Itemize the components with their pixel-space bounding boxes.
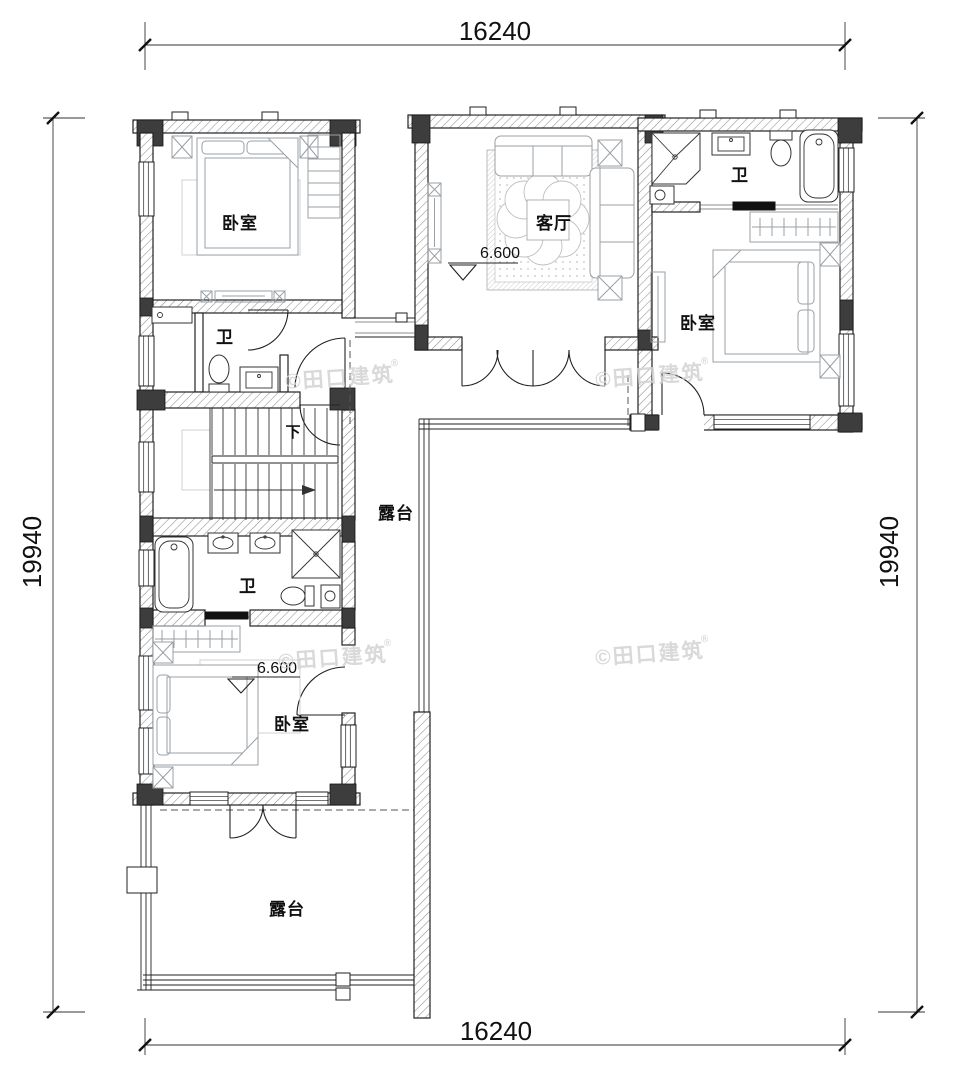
watermark-reg-icon: ® [701, 634, 710, 646]
counter [152, 307, 192, 323]
terrace-side-wall [414, 712, 430, 1018]
corner-basin [321, 585, 340, 608]
corner-basin [650, 186, 674, 204]
bed [153, 665, 258, 765]
room-label-terrace-middle: 露台 [378, 503, 414, 523]
toilet [770, 131, 792, 166]
dimension-right-value: 19940 [874, 516, 904, 588]
stair-down-label: 下 [285, 424, 300, 441]
drain-marker [336, 988, 350, 1000]
sofa-chaise [590, 168, 634, 278]
room-label-living-room: 客厅 [535, 213, 572, 233]
side-table [598, 276, 622, 300]
room-label-bath-middle: 卫 [239, 577, 257, 596]
shower [652, 133, 700, 184]
nightstand [172, 136, 192, 158]
side-table [598, 140, 622, 166]
floor-plan: 16240 16240 19940 19940 [0, 0, 960, 1087]
room-label-bath-top-left: 卫 [216, 328, 234, 347]
bed [713, 250, 820, 362]
bathtub [155, 537, 193, 612]
bed [197, 138, 298, 255]
room-label-terrace-bottom: 露台 [269, 899, 305, 919]
shower [292, 530, 340, 578]
dimension-left-value: 19940 [17, 516, 47, 588]
sink-vanity [208, 533, 238, 553]
watermark-reg-icon: ® [391, 358, 400, 370]
drain-marker [336, 973, 350, 986]
room-label-bedroom-bottom-left: 卧室 [274, 714, 310, 734]
watermark-reg-icon: ® [384, 638, 393, 650]
toilet [209, 355, 229, 392]
room-label-bedroom-right: 卧室 [680, 313, 716, 333]
watermark-reg-icon: ® [701, 356, 710, 368]
floor-plan-drawing: 16240 16240 19940 19940 [0, 0, 960, 1087]
room-label-bath-right: 卫 [731, 166, 749, 185]
nightstand [153, 767, 173, 788]
room-label-bedroom-top-left: 卧室 [222, 213, 258, 233]
sofa [495, 136, 592, 176]
toilet [281, 586, 314, 606]
dimension-bottom-value: 16240 [460, 1016, 532, 1046]
sink-vanity [240, 367, 278, 392]
nightstand [820, 355, 840, 378]
nightstand [820, 243, 840, 266]
nightstand [153, 642, 173, 663]
elevation-value: 6.600 [480, 245, 520, 262]
dimension-top-value: 16240 [459, 16, 531, 46]
railing-pier [127, 867, 157, 893]
bathtub [800, 130, 838, 202]
sink-vanity [250, 533, 280, 553]
sink-vanity [712, 133, 750, 155]
